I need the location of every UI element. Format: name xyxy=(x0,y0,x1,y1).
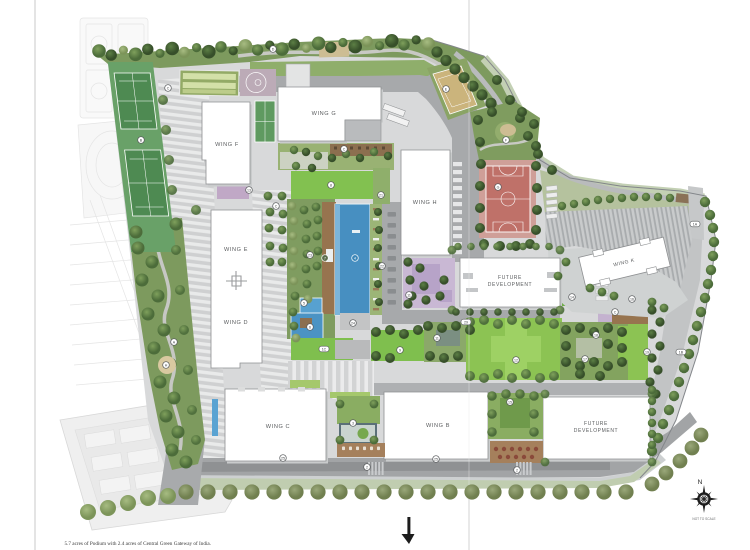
svg-text:NOT TO SCALE: NOT TO SCALE xyxy=(692,517,715,521)
svg-text:1B: 1B xyxy=(679,350,684,354)
svg-text:13: 13 xyxy=(247,188,251,192)
svg-text:14: 14 xyxy=(570,295,574,299)
svg-text:9: 9 xyxy=(399,348,401,352)
svg-text:5.7 acres of Podium with 2.4 a: 5.7 acres of Podium with 2.4 acres of Ce… xyxy=(65,540,212,547)
svg-text:C: C xyxy=(167,86,170,90)
svg-text:DEVELOPMENT: DEVELOPMENT xyxy=(488,282,532,288)
svg-text:G: G xyxy=(497,185,500,189)
svg-text:2: 2 xyxy=(516,468,518,472)
svg-text:7: 7 xyxy=(324,256,326,260)
svg-text:H: H xyxy=(165,363,168,367)
svg-text:15: 15 xyxy=(508,400,512,404)
svg-text:21: 21 xyxy=(379,193,383,197)
svg-text:18: 18 xyxy=(594,333,598,337)
svg-text:24: 24 xyxy=(351,321,355,325)
svg-text:8: 8 xyxy=(330,183,332,187)
svg-text:FUTURE: FUTURE xyxy=(584,421,608,427)
svg-text:FUTURE: FUTURE xyxy=(498,275,522,281)
svg-text:25: 25 xyxy=(434,457,438,461)
svg-text:19: 19 xyxy=(645,350,649,354)
svg-text:DEVELOPMENT: DEVELOPMENT xyxy=(574,428,618,434)
svg-text:6: 6 xyxy=(309,325,311,329)
svg-text:11: 11 xyxy=(407,293,411,297)
svg-text:1A: 1A xyxy=(693,222,698,226)
svg-text:29: 29 xyxy=(464,320,468,324)
svg-text:5: 5 xyxy=(303,301,305,305)
svg-text:C: C xyxy=(614,310,617,314)
svg-text:3: 3 xyxy=(352,421,354,425)
svg-text:WING C: WING C xyxy=(266,424,290,430)
svg-text:1C: 1C xyxy=(322,347,327,351)
svg-text:12: 12 xyxy=(514,358,518,362)
svg-text:17: 17 xyxy=(583,357,587,361)
svg-text:WING H: WING H xyxy=(413,200,437,206)
svg-text:WING D: WING D xyxy=(224,320,248,326)
svg-text:23: 23 xyxy=(308,253,312,257)
svg-text:WING E: WING E xyxy=(224,247,248,253)
svg-text:WING B: WING B xyxy=(426,423,450,429)
svg-text:C: C xyxy=(343,147,346,151)
svg-text:4: 4 xyxy=(354,256,356,260)
svg-text:22: 22 xyxy=(380,264,384,268)
svg-text:2: 2 xyxy=(366,465,368,469)
svg-text:C: C xyxy=(275,204,278,208)
svg-text:25: 25 xyxy=(281,456,285,460)
svg-text:WING F: WING F xyxy=(215,142,239,148)
svg-text:16: 16 xyxy=(630,297,634,301)
svg-text:D: D xyxy=(272,47,275,51)
svg-text:WING G: WING G xyxy=(312,111,337,117)
svg-text:N: N xyxy=(698,479,703,486)
svg-text:11: 11 xyxy=(435,336,439,340)
